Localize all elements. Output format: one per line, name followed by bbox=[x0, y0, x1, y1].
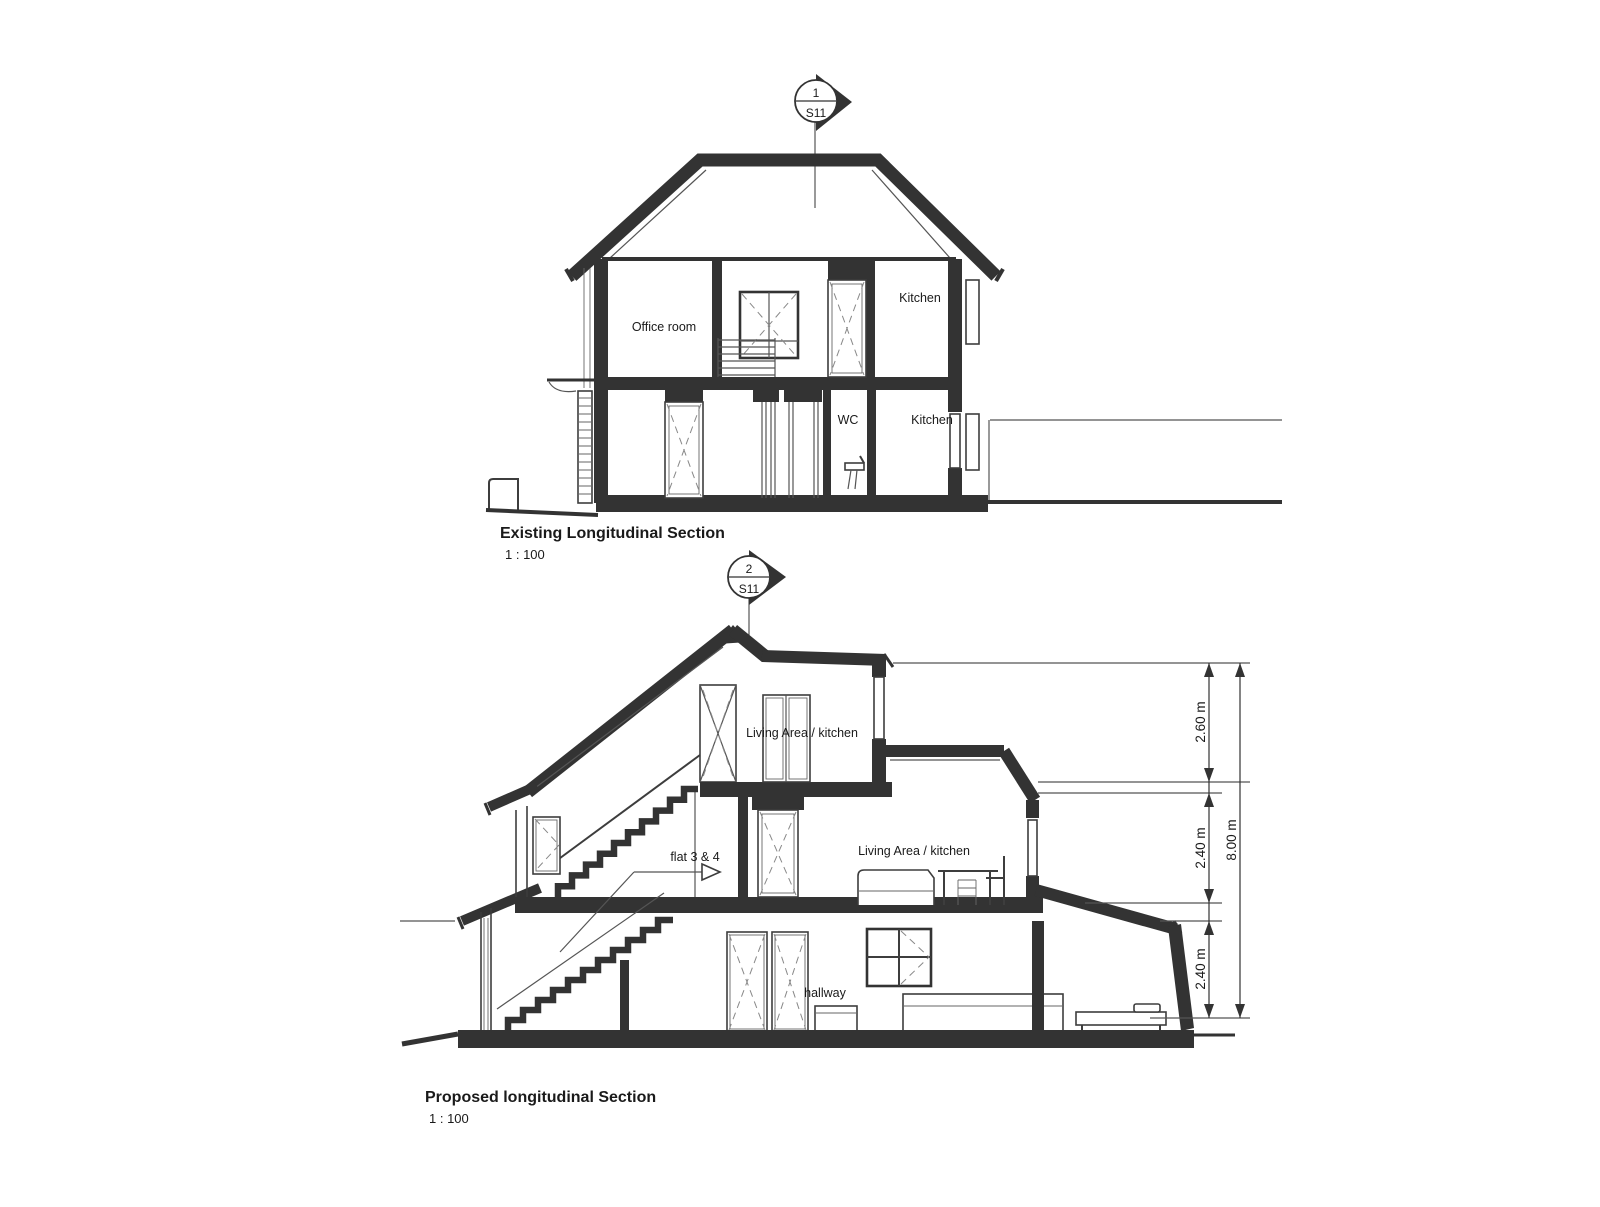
ground-line bbox=[486, 510, 598, 515]
door-lintel bbox=[752, 797, 804, 810]
overall-dimension-line: 8.00 m bbox=[1224, 663, 1245, 1018]
sections-drawing: 1 S11 bbox=[0, 0, 1600, 1207]
mid-door bbox=[758, 810, 798, 897]
hall-cabinet bbox=[815, 1006, 857, 1032]
upper-handrail bbox=[552, 755, 700, 864]
marker-number: 1 bbox=[813, 86, 820, 100]
base-slab bbox=[458, 1030, 1194, 1048]
existing-section-scale: 1 : 100 bbox=[505, 547, 545, 562]
dim-overall: 8.00 m bbox=[1224, 819, 1239, 860]
existing-section: 1 S11 bbox=[486, 74, 1282, 562]
canopy-bracket bbox=[549, 382, 576, 392]
proposed-section: 2 S11 Living Area / kitchen bbox=[400, 550, 1250, 1126]
door-lintel bbox=[665, 388, 703, 402]
rear-partition-wall bbox=[1032, 921, 1044, 1032]
flats-label: flat 3 & 4 bbox=[670, 850, 719, 864]
arrow-icon bbox=[1204, 1004, 1214, 1018]
dormer-roof bbox=[489, 786, 537, 807]
garden-step bbox=[489, 479, 518, 511]
arrow-icon bbox=[1204, 889, 1214, 903]
living-mid-label: Living Area / kitchen bbox=[858, 844, 970, 858]
lower-stair-flight bbox=[508, 920, 673, 1030]
mid-partition-wall bbox=[738, 797, 748, 897]
doorway-frame bbox=[762, 402, 775, 498]
storey-dimension-line: 2.60 m 2.40 m 2.40 m bbox=[1193, 663, 1214, 1018]
doorway-frame bbox=[789, 402, 818, 498]
mid-sofa bbox=[858, 870, 934, 905]
top-right-window bbox=[874, 677, 884, 739]
mid-right-window bbox=[1028, 820, 1037, 876]
roof-inner-line bbox=[535, 647, 723, 788]
upper-partition-wall bbox=[712, 259, 722, 377]
mid-right-wall bbox=[1026, 800, 1039, 818]
top-flat-roof bbox=[762, 656, 886, 660]
bay-window-lower bbox=[966, 414, 979, 470]
door-lintel bbox=[753, 388, 779, 402]
dormer bbox=[516, 806, 560, 897]
ground-left-wall bbox=[481, 908, 491, 1032]
bay-window-upper bbox=[966, 280, 979, 344]
ground-window bbox=[867, 929, 931, 986]
kitchen-partition bbox=[867, 388, 876, 498]
door-lintel bbox=[828, 259, 866, 280]
marker-sheet: S11 bbox=[739, 582, 760, 596]
kitchen-upper-label: Kitchen bbox=[899, 291, 941, 305]
section-marker-1: 1 S11 bbox=[795, 74, 852, 208]
rear-right-wall bbox=[1168, 924, 1194, 1031]
arrow-icon bbox=[1204, 793, 1214, 807]
section-marker-2: 2 S11 bbox=[728, 550, 786, 636]
dormer-window bbox=[533, 817, 560, 874]
arrow-icon bbox=[1235, 663, 1245, 677]
proposed-section-title: Proposed longitudinal Section bbox=[425, 1089, 656, 1106]
arrow-icon bbox=[1204, 768, 1214, 782]
stair-post bbox=[620, 960, 629, 1030]
arrow-icon bbox=[1204, 921, 1214, 935]
wc-sink bbox=[845, 456, 864, 489]
door-lintel bbox=[784, 388, 822, 402]
ground-line-left bbox=[402, 1034, 458, 1044]
proposed-section-scale: 1 : 100 bbox=[429, 1111, 469, 1126]
top-right-wall bbox=[872, 660, 886, 677]
dim-ground-floor: 2.40 m bbox=[1193, 948, 1208, 989]
marker-number: 2 bbox=[746, 562, 753, 576]
arrow-icon bbox=[1204, 663, 1214, 677]
dim-top-floor: 2.60 m bbox=[1193, 701, 1208, 742]
second-floor-slab bbox=[700, 782, 892, 797]
wc-label: WC bbox=[838, 413, 859, 427]
hallway-label: hallway bbox=[804, 986, 846, 1000]
flats-leader-arrow-icon bbox=[702, 864, 720, 880]
rear-extension-roof bbox=[1036, 890, 1176, 929]
roof-inner-line bbox=[610, 170, 706, 258]
dim-mid-floor: 2.40 m bbox=[1193, 827, 1208, 868]
kitchen-lower-label: Kitchen bbox=[911, 413, 953, 427]
first-floor-slab bbox=[515, 897, 1043, 913]
drawing-sheet: 1 S11 bbox=[0, 0, 1600, 1207]
living-top-label: Living Area / kitchen bbox=[746, 726, 858, 740]
wc-partition bbox=[823, 388, 831, 498]
rear-roof-slope bbox=[1004, 751, 1035, 800]
arrow-icon bbox=[1235, 1004, 1245, 1018]
existing-section-title: Existing Longitudinal Section bbox=[500, 525, 725, 542]
office-room-label: Office room bbox=[632, 320, 696, 334]
ground-slab bbox=[596, 495, 988, 512]
marker-sheet: S11 bbox=[806, 106, 827, 120]
upper-partition-wall bbox=[866, 259, 875, 377]
